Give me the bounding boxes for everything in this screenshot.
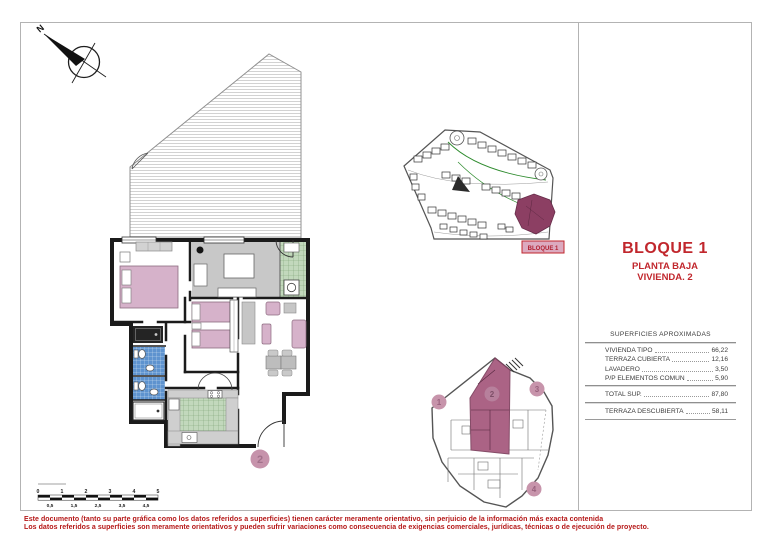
disclaimer: Este documento (tanto su parte gráfica c… bbox=[24, 516, 752, 532]
row-value: 66,22 bbox=[711, 347, 728, 354]
entry-door bbox=[258, 421, 284, 447]
site-block-label: BLOQUE 1 bbox=[522, 241, 564, 253]
key-unit-2: 2 bbox=[490, 390, 495, 399]
site-plan: BLOQUE 1 bbox=[398, 112, 568, 260]
compass-north-label: N bbox=[35, 23, 46, 35]
scale-bar-segments bbox=[38, 495, 158, 500]
unit-number-label: 2 bbox=[257, 454, 263, 466]
fridge bbox=[169, 399, 179, 410]
floor-label: PLANTA BAJA bbox=[579, 261, 751, 272]
table-separator bbox=[585, 342, 736, 344]
key-unit-3: 3 bbox=[535, 385, 540, 394]
key-unit-1: 1 bbox=[437, 398, 442, 407]
roundabout bbox=[450, 131, 464, 145]
unit-number-badge: 2 bbox=[251, 450, 270, 469]
dotted-leader bbox=[672, 361, 710, 362]
armchair bbox=[266, 302, 280, 315]
dotted-leader bbox=[686, 413, 710, 414]
sideboard bbox=[242, 302, 255, 344]
row-label: LAVADERO bbox=[605, 366, 640, 373]
roundabout bbox=[535, 168, 547, 180]
bedroom2-furniture bbox=[192, 300, 238, 352]
extra-label: TERRAZA DESCUBIERTA bbox=[605, 408, 684, 415]
table-separator bbox=[585, 402, 736, 404]
table-row: TERRAZA CUBIERTA 12,16 bbox=[585, 356, 736, 363]
table bbox=[224, 254, 254, 278]
key-plan: 1 2 3 4 bbox=[418, 350, 564, 512]
areas-table-header: SUPERFICIES APROXIMADAS bbox=[585, 331, 736, 338]
svg-text:5: 5 bbox=[157, 489, 160, 495]
extra-value: 58,11 bbox=[712, 408, 728, 415]
column bbox=[197, 247, 204, 254]
total-value: 87,80 bbox=[711, 391, 728, 398]
table-total-row: TOTAL SUP. 87,80 bbox=[585, 391, 736, 398]
title-block: BLOQUE 1 PLANTA BAJA VIVIENDA. 2 bbox=[579, 240, 751, 283]
dotted-leader bbox=[644, 396, 710, 397]
block-title: BLOQUE 1 bbox=[579, 240, 751, 258]
dotted-leader bbox=[642, 371, 713, 372]
table-extra-row: TERRAZA DESCUBIERTA 58,11 bbox=[585, 408, 736, 415]
table-separator bbox=[585, 419, 736, 420]
svg-text:0: 0 bbox=[37, 489, 40, 495]
scale-bottom-labels: 0,5 1,5 2,5 3,5 4,5 bbox=[47, 503, 150, 509]
svg-text:4,5: 4,5 bbox=[143, 503, 150, 509]
toilet bbox=[139, 382, 146, 391]
toilet bbox=[139, 350, 146, 359]
row-value: 5,90 bbox=[715, 375, 728, 382]
sofa bbox=[292, 320, 306, 348]
kitchen-sink bbox=[182, 433, 197, 443]
dotted-leader bbox=[687, 380, 714, 381]
sink bbox=[150, 389, 158, 395]
disclaimer-line-1: Este documento (tanto su parte gráfica c… bbox=[24, 516, 752, 524]
key-unit-4: 4 bbox=[532, 485, 537, 494]
row-label: VIVIENDA TIPO bbox=[605, 347, 653, 354]
kitchen-floor bbox=[180, 398, 226, 431]
bench bbox=[218, 288, 256, 297]
table-row: LAVADERO 3,50 bbox=[585, 366, 736, 373]
svg-text:2: 2 bbox=[85, 489, 88, 495]
sink bbox=[146, 365, 154, 371]
row-value: 3,50 bbox=[715, 366, 728, 373]
row-label: TERRAZA CUBIERTA bbox=[605, 356, 670, 363]
svg-text:1,5: 1,5 bbox=[71, 503, 78, 509]
floor-plan: 2 bbox=[108, 40, 314, 472]
total-label: TOTAL SUP. bbox=[605, 391, 642, 398]
stove bbox=[208, 391, 222, 399]
scale-bar: 0 1 2 3 4 5 0,5 1,5 2,5 3,5 4,5 bbox=[34, 480, 166, 512]
living-room-furniture bbox=[242, 302, 306, 376]
table-separator bbox=[585, 385, 736, 387]
svg-text:2,5: 2,5 bbox=[95, 503, 102, 509]
svg-text:4: 4 bbox=[133, 489, 136, 495]
areas-table: SUPERFICIES APROXIMADAS VIVIENDA TIPO 66… bbox=[585, 331, 736, 422]
unit-label: VIVIENDA. 2 bbox=[579, 272, 751, 283]
disclaimer-line-2: Los datos referidos a superficies son me… bbox=[24, 524, 752, 532]
table-row: VIVIENDA TIPO 66,22 bbox=[585, 347, 736, 354]
washing-machine bbox=[284, 280, 299, 295]
compass-north-icon: N bbox=[30, 18, 118, 90]
compass-needle bbox=[44, 34, 85, 66]
svg-text:3: 3 bbox=[109, 489, 112, 495]
scale-top-labels: 0 1 2 3 4 5 bbox=[37, 489, 160, 495]
row-label: P/P ELEMENTOS COMUN bbox=[605, 375, 685, 382]
table-row: P/P ELEMENTOS COMUN 5,90 bbox=[585, 375, 736, 382]
dining-table bbox=[266, 356, 281, 369]
svg-text:1: 1 bbox=[61, 489, 64, 495]
row-value: 12,16 bbox=[711, 356, 728, 363]
dotted-leader bbox=[655, 352, 710, 353]
terrace-descubierta bbox=[130, 54, 301, 238]
svg-text:0,5: 0,5 bbox=[47, 503, 54, 509]
svg-text:3,5: 3,5 bbox=[119, 503, 126, 509]
site-block-label-text: BLOQUE 1 bbox=[528, 246, 559, 252]
bedroom1-furniture bbox=[120, 242, 178, 308]
